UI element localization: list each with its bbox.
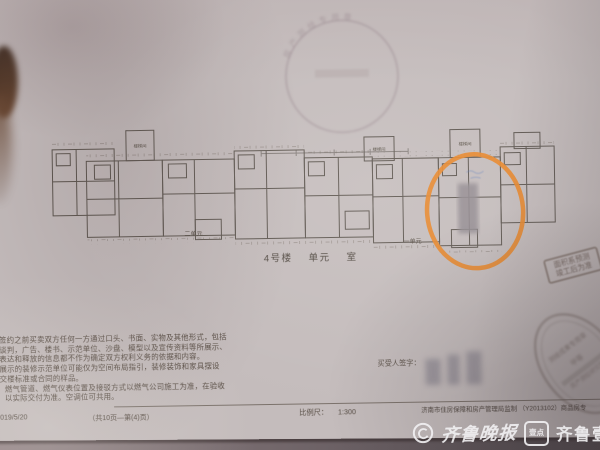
newspaper-name: 齐鲁晚报 bbox=[440, 419, 519, 448]
oval-stamp-line2: 甲等 bbox=[569, 352, 586, 368]
building-number: 4号楼 bbox=[264, 250, 293, 264]
buyer-signature-row: 买受人签字： bbox=[377, 351, 482, 386]
disclaimer-paragraph: 签约之前买卖双方任何一方通过口头、书面、实物及其他形式，包括 谈判，广告、楼书、… bbox=[0, 330, 352, 403]
redacted-unit-blur bbox=[458, 183, 479, 233]
footer-page-count: （共10页—第(4)页） bbox=[88, 412, 153, 423]
news-watermark: 齐鲁晚报 壹点 齐鲁壹点 bbox=[412, 420, 600, 446]
footer-scale: 比例尺： 1:300 bbox=[299, 407, 356, 418]
unit-word: 单元 bbox=[308, 250, 330, 264]
qilu-one-point-logo-icon: 壹点 bbox=[524, 421, 549, 446]
qilu-evening-news-logo-icon bbox=[412, 422, 434, 444]
paper-content: 房产测绘专用章 bbox=[0, 0, 600, 450]
buyer-signature-label: 买受人签字： bbox=[377, 352, 420, 369]
redacted-signature-blur bbox=[425, 351, 482, 385]
footer-date: 2019/5/20 bbox=[0, 414, 27, 421]
scale-label: 比例尺： bbox=[299, 408, 328, 418]
news-app-name: 齐鲁壹点 bbox=[556, 421, 600, 445]
round-survey-stamp: 房产测绘专用章 bbox=[280, 10, 399, 133]
unit-2-label: 二单元 bbox=[184, 230, 202, 238]
unit-1-label: 一单元 bbox=[404, 237, 422, 245]
round-stamp-arc-text: 房产测绘专用章 bbox=[280, 11, 357, 59]
room-word: 室 bbox=[346, 249, 357, 263]
photographed-floorplan-document: 房产测绘专用章 bbox=[0, 0, 600, 450]
stair-label: 楼梯间 bbox=[459, 140, 472, 147]
svg-text:房产测绘专用章: 房产测绘专用章 bbox=[280, 11, 357, 59]
building-unit-room-line: 4号楼 单元 室 bbox=[264, 249, 358, 264]
scale-value: 1:300 bbox=[338, 407, 356, 417]
stair-label: 楼梯间 bbox=[134, 142, 147, 149]
